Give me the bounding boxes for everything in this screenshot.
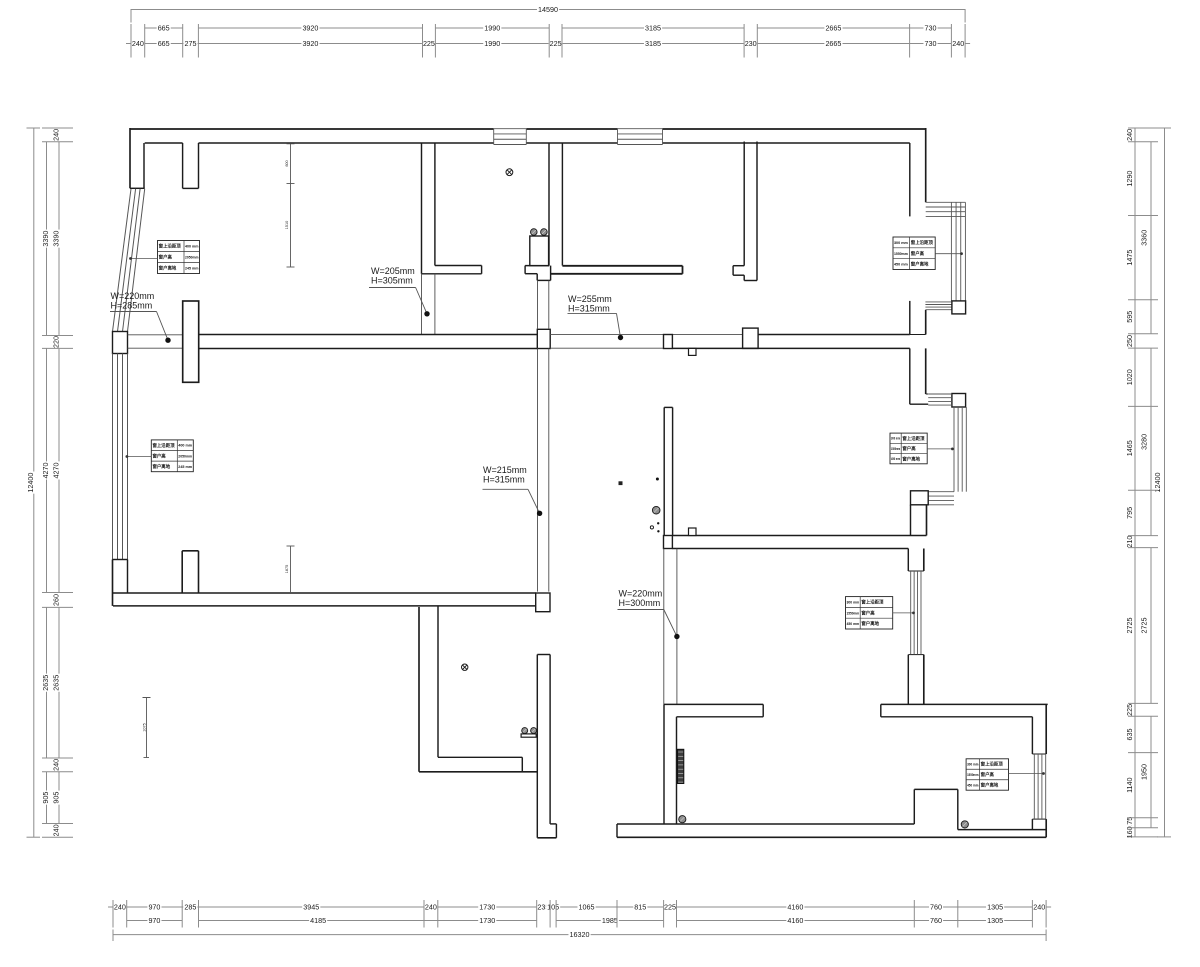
svg-text:400 mm: 400 mm (178, 443, 192, 448)
svg-text:4270: 4270 (52, 462, 61, 478)
svg-text:4185: 4185 (310, 916, 326, 925)
svg-text:665: 665 (158, 24, 170, 33)
svg-text:窗户高: 窗户高 (861, 609, 875, 616)
svg-text:1550mm: 1550mm (967, 772, 979, 777)
svg-text:1950: 1950 (1140, 764, 1149, 780)
svg-text:2635: 2635 (52, 675, 61, 691)
svg-text:260: 260 (52, 594, 61, 606)
svg-text:3945: 3945 (303, 903, 319, 912)
svg-text:窗户离地: 窗户离地 (861, 620, 879, 627)
svg-text:12400: 12400 (26, 473, 35, 493)
svg-text:窗户离地: 窗户离地 (153, 463, 171, 470)
svg-text:220: 220 (52, 336, 61, 348)
svg-text:2725: 2725 (1125, 618, 1134, 634)
svg-text:240: 240 (1033, 903, 1045, 912)
svg-text:1065: 1065 (579, 903, 595, 912)
svg-text:窗上沿距顶: 窗上沿距顶 (861, 599, 884, 606)
svg-text:245 mm: 245 mm (178, 464, 192, 469)
svg-text:2050mm: 2050mm (178, 453, 192, 458)
svg-text:245 mm: 245 mm (185, 266, 199, 271)
svg-text:210: 210 (1125, 536, 1134, 548)
svg-text:窗户离地: 窗户离地 (981, 782, 999, 789)
svg-text:1465: 1465 (1125, 440, 1134, 456)
svg-text:815: 815 (634, 903, 646, 912)
svg-text:1140: 1140 (1125, 777, 1134, 792)
svg-text:窗户高: 窗户高 (911, 250, 925, 257)
svg-text:H=315mm: H=315mm (568, 304, 610, 314)
svg-text:窗户离地: 窗户离地 (902, 455, 920, 462)
svg-text:300 mm: 300 mm (894, 240, 908, 245)
svg-text:窗户高: 窗户高 (153, 452, 167, 459)
svg-text:795: 795 (1125, 507, 1134, 519)
svg-text:905: 905 (41, 792, 50, 804)
svg-text:595: 595 (1125, 311, 1134, 323)
svg-text:760: 760 (930, 916, 942, 925)
svg-text:窗上沿距顶: 窗上沿距顶 (902, 435, 925, 442)
svg-text:300 mm: 300 mm (891, 436, 900, 441)
svg-text:1550mm: 1550mm (891, 446, 900, 451)
svg-text:2665: 2665 (825, 24, 841, 33)
svg-text:3920: 3920 (302, 39, 318, 48)
svg-text:450 mm: 450 mm (967, 782, 979, 787)
svg-text:300 mm: 300 mm (847, 600, 860, 605)
svg-text:W=205mm: W=205mm (371, 266, 415, 276)
svg-text:2050mm: 2050mm (185, 255, 199, 260)
svg-text:14590: 14590 (538, 5, 558, 14)
svg-text:窗上沿距顶: 窗上沿距顶 (153, 442, 176, 449)
svg-text:窗上沿距顶: 窗上沿距顶 (159, 243, 182, 250)
svg-text:970: 970 (148, 903, 160, 912)
svg-text:240: 240 (52, 129, 61, 141)
svg-text:230: 230 (745, 39, 757, 48)
svg-text:2725: 2725 (1140, 618, 1149, 634)
svg-text:窗户高: 窗户高 (902, 445, 916, 452)
svg-text:600: 600 (285, 160, 289, 166)
svg-text:3280: 3280 (1140, 434, 1149, 450)
svg-text:1075: 1075 (143, 723, 147, 731)
svg-text:225: 225 (1125, 704, 1134, 716)
svg-text:275: 275 (185, 39, 197, 48)
svg-text:W=255mm: W=255mm (568, 294, 612, 304)
svg-text:窗上沿距顶: 窗上沿距顶 (981, 761, 1004, 768)
svg-text:970: 970 (148, 916, 160, 925)
svg-text:635: 635 (1125, 728, 1134, 740)
svg-text:H=285mm: H=285mm (111, 301, 153, 311)
svg-text:760: 760 (930, 903, 942, 912)
svg-text:250: 250 (1125, 335, 1134, 347)
svg-text:225: 225 (423, 39, 435, 48)
svg-text:225: 225 (664, 903, 676, 912)
svg-text:1290: 1290 (1125, 171, 1134, 187)
svg-text:1550mm: 1550mm (894, 251, 908, 256)
svg-text:窗户离地: 窗户离地 (159, 265, 177, 272)
svg-text:4160: 4160 (787, 916, 803, 925)
svg-text:1510: 1510 (285, 221, 289, 229)
svg-text:H=315mm: H=315mm (483, 475, 525, 485)
svg-text:1990: 1990 (484, 24, 500, 33)
svg-text:450 mm: 450 mm (847, 621, 860, 626)
svg-text:730: 730 (925, 24, 937, 33)
svg-text:3360: 3360 (1140, 230, 1149, 246)
svg-text:240: 240 (52, 824, 61, 836)
svg-text:225: 225 (550, 39, 562, 48)
svg-text:240: 240 (114, 903, 126, 912)
svg-text:1305: 1305 (987, 916, 1003, 925)
svg-text:2665: 2665 (825, 39, 841, 48)
svg-text:240: 240 (1125, 129, 1134, 141)
svg-text:窗户高: 窗户高 (981, 771, 995, 778)
svg-text:1875: 1875 (285, 565, 289, 573)
svg-text:3185: 3185 (645, 39, 661, 48)
svg-text:1730: 1730 (479, 916, 495, 925)
svg-text:窗户离地: 窗户离地 (911, 261, 929, 268)
svg-text:12400: 12400 (1153, 472, 1162, 492)
svg-text:3185: 3185 (645, 24, 661, 33)
svg-text:1550mm: 1550mm (847, 610, 860, 615)
svg-text:窗户高: 窗户高 (159, 254, 173, 261)
svg-text:450 mm: 450 mm (894, 262, 908, 267)
svg-text:3390: 3390 (41, 231, 50, 247)
svg-text:905: 905 (52, 792, 61, 804)
svg-text:2635: 2635 (41, 675, 50, 691)
svg-text:4160: 4160 (787, 903, 803, 912)
svg-text:W=215mm: W=215mm (483, 465, 527, 475)
svg-text:H=300mm: H=300mm (619, 598, 661, 608)
svg-text:3390: 3390 (52, 231, 61, 247)
svg-text:H=305mm: H=305mm (371, 276, 413, 286)
svg-text:450 mm: 450 mm (891, 456, 900, 461)
svg-text:240: 240 (952, 39, 964, 48)
svg-text:窗上沿距顶: 窗上沿距顶 (911, 239, 934, 246)
svg-text:1985: 1985 (602, 916, 618, 925)
svg-text:1730: 1730 (479, 903, 495, 912)
svg-text:285: 285 (184, 903, 196, 912)
svg-text:730: 730 (925, 39, 937, 48)
svg-text:1475: 1475 (1125, 250, 1134, 266)
svg-text:240: 240 (52, 759, 61, 771)
svg-text:W=220mm: W=220mm (111, 291, 155, 301)
svg-text:1990: 1990 (484, 39, 500, 48)
svg-text:W=220mm: W=220mm (619, 589, 663, 599)
svg-text:3920: 3920 (302, 24, 318, 33)
svg-text:16320: 16320 (570, 930, 590, 939)
svg-text:665: 665 (158, 39, 170, 48)
svg-text:300 mm: 300 mm (967, 762, 979, 767)
svg-text:240: 240 (132, 39, 144, 48)
svg-text:1305: 1305 (987, 903, 1003, 912)
svg-text:105: 105 (547, 903, 559, 912)
svg-text:4270: 4270 (41, 462, 50, 478)
svg-text:240: 240 (425, 903, 437, 912)
svg-text:1020: 1020 (1125, 369, 1134, 385)
svg-text:400 mm: 400 mm (185, 244, 199, 249)
